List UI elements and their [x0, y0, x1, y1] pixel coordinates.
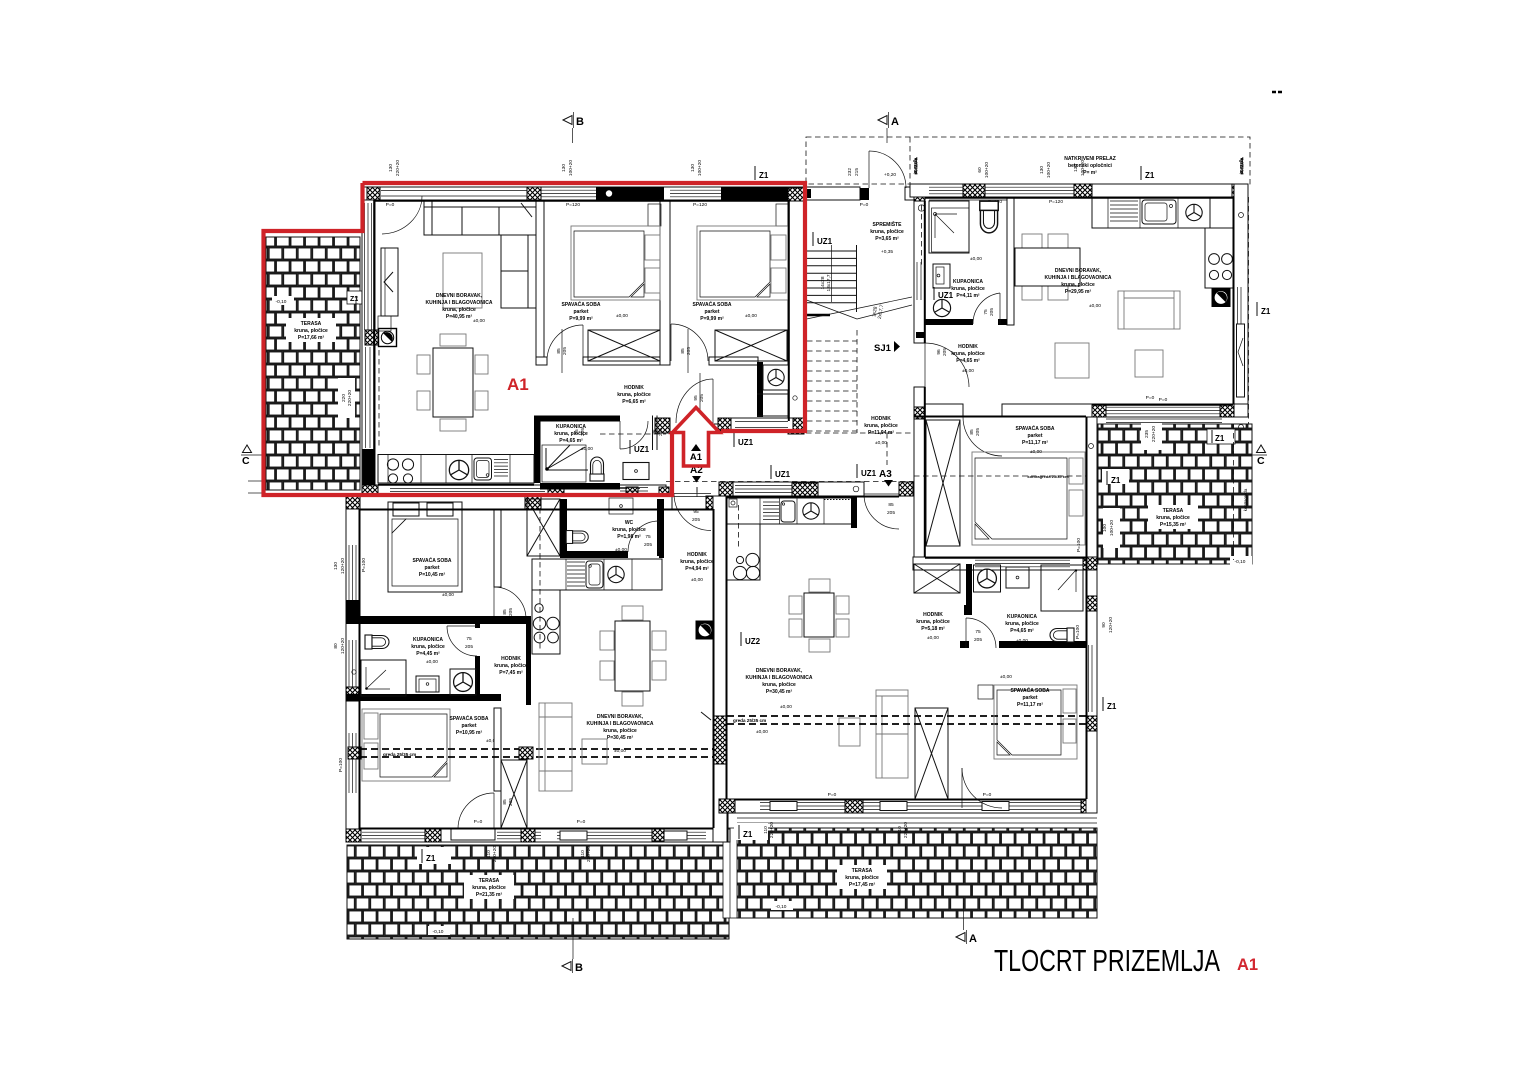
svg-text:100+20: 100+20 [568, 160, 574, 176]
svg-text:100: 100 [1102, 524, 1108, 532]
svg-text:kruna, pločice: kruna, pločice [442, 307, 476, 313]
svg-text:SPAVAĆA SOBA: SPAVAĆA SOBA [1011, 686, 1050, 694]
svg-text:Z1: Z1 [1145, 171, 1155, 180]
svg-text:P=11,94 m²: P=11,94 m² [868, 430, 894, 436]
svg-text:±0,00: ±0,00 [1016, 638, 1028, 644]
svg-text:P=4,65 m²: P=4,65 m² [559, 438, 583, 444]
svg-text:P=30,45 m²: P=30,45 m² [766, 689, 793, 695]
svg-text:KUHINJA I BLAGOVAONICA: KUHINJA I BLAGOVAONICA [1045, 275, 1112, 281]
svg-text:P=100: P=100 [1076, 538, 1082, 552]
svg-text:kruna, pločice: kruna, pločice [294, 328, 328, 334]
svg-text:UZ1: UZ1 [634, 445, 650, 454]
svg-text:60: 60 [977, 167, 983, 173]
svg-text:C: C [1257, 455, 1265, 467]
svg-text:kruna, pločice: kruna, pločice [845, 875, 879, 881]
svg-text:P=10,95 m²: P=10,95 m² [456, 730, 483, 736]
svg-text:205: 205 [887, 510, 895, 516]
svg-text:kontragreda 25/35 cm: kontragreda 25/35 cm [1027, 474, 1069, 479]
svg-text:kruna, pločice: kruna, pločice [612, 527, 646, 533]
svg-text:KUHINJA I BLAGOVAONICA: KUHINJA I BLAGOVAONICA [746, 675, 813, 681]
svg-text:110: 110 [897, 826, 903, 834]
svg-text:P=100: P=100 [1075, 625, 1081, 639]
svg-text:HODNIK: HODNIK [923, 612, 943, 618]
svg-text:A1: A1 [507, 375, 529, 394]
svg-text:85: 85 [502, 609, 508, 615]
svg-text:P=0: P=0 [1146, 395, 1155, 401]
svg-text:DNEVNI BORAVAK,: DNEVNI BORAVAK, [756, 668, 803, 674]
svg-text:205: 205 [580, 428, 586, 436]
svg-text:kruna, pločice: kruna, pločice [916, 619, 950, 625]
svg-text:205: 205 [562, 347, 568, 355]
svg-text:Z1: Z1 [743, 830, 753, 839]
svg-text:85: 85 [556, 348, 562, 354]
svg-text:85: 85 [680, 348, 686, 354]
svg-text:P=11,17 m²: P=11,17 m² [1017, 702, 1043, 708]
svg-text:P=17,45 m²: P=17,45 m² [849, 882, 876, 888]
svg-text:HODNIK: HODNIK [624, 385, 644, 391]
svg-text:232: 232 [847, 168, 853, 176]
svg-text:205: 205 [658, 428, 664, 436]
svg-text:kruna, pločice: kruna, pločice [494, 663, 528, 669]
svg-text:205: 205 [942, 348, 948, 356]
svg-text:A1: A1 [1237, 956, 1258, 974]
svg-text:P=5,18 m²: P=5,18 m² [921, 626, 945, 632]
svg-text:parket: parket [424, 565, 439, 571]
svg-text:P=4,45 m²: P=4,45 m² [416, 651, 440, 657]
svg-text:±0,00: ±0,00 [442, 592, 454, 598]
svg-text:A1: A1 [690, 452, 703, 463]
svg-text:UZ1: UZ1 [861, 469, 877, 478]
svg-text:-0,10: -0,10 [433, 929, 444, 935]
svg-text:220+20: 220+20 [347, 390, 353, 406]
svg-text:96: 96 [936, 349, 942, 355]
svg-text:kruna, pločice: kruna, pločice [411, 644, 445, 650]
svg-text:NATKRIVENI PRELAZ: NATKRIVENI PRELAZ [1064, 156, 1116, 162]
svg-text:205: 205 [692, 517, 700, 523]
svg-text:85: 85 [888, 502, 894, 508]
svg-text:DNEVNI BORAVAK,: DNEVNI BORAVAK, [1055, 268, 1102, 274]
svg-text:95: 95 [693, 395, 699, 401]
svg-text:P=9,99 m²: P=9,99 m² [569, 316, 593, 322]
svg-text:+0,35: +0,35 [881, 249, 893, 255]
svg-text:±0,00: ±0,00 [875, 440, 887, 446]
svg-text:P=1,98 m²: P=1,98 m² [617, 534, 641, 540]
svg-text:P=0: P=0 [860, 202, 869, 208]
svg-text:P=0: P=0 [828, 792, 837, 798]
svg-text:75: 75 [645, 534, 651, 540]
svg-text:HODNIK: HODNIK [501, 656, 521, 662]
svg-text:B: B [576, 116, 584, 128]
svg-text:130: 130 [561, 164, 567, 172]
svg-text:P=4,11 m²: P=4,11 m² [956, 293, 980, 299]
svg-text:±0,00: ±0,00 [581, 446, 593, 452]
svg-text:betonski opločnici: betonski opločnici [1068, 163, 1113, 169]
svg-text:P=29,95 m²: P=29,95 m² [1065, 289, 1092, 295]
svg-text:konzola: konzola [1239, 157, 1245, 174]
svg-text:±0,00: ±0,00 [780, 704, 792, 710]
svg-text:P=6,65 m²: P=6,65 m² [622, 399, 646, 405]
svg-text:KUHINJA I BLAGOVAONICA: KUHINJA I BLAGOVAONICA [587, 721, 654, 727]
svg-text:A: A [969, 933, 977, 945]
svg-text:A: A [891, 116, 899, 128]
svg-text:P=3,65 m²: P=3,65 m² [875, 236, 899, 242]
svg-text:110: 110 [580, 850, 586, 858]
svg-text:kruna, pločice: kruna, pločice [1061, 282, 1095, 288]
svg-text:parket: parket [573, 309, 588, 315]
svg-text:SPREMIŠTE: SPREMIŠTE [873, 220, 903, 228]
svg-text:P=0: P=0 [1159, 397, 1168, 403]
svg-text:±0,00: ±0,00 [927, 635, 939, 641]
svg-text:TERASA: TERASA [301, 321, 322, 327]
svg-text:P=40,95 m²: P=40,95 m² [446, 314, 473, 320]
svg-text:85: 85 [502, 799, 508, 805]
svg-text:DNEVNI BORAVAK,: DNEVNI BORAVAK, [597, 714, 644, 720]
svg-text:±0,00: ±0,00 [1089, 303, 1101, 309]
svg-text:215: 215 [854, 168, 860, 176]
svg-text:220+20: 220+20 [769, 822, 775, 838]
svg-text:KUHINJA I BLAGOVAONICA: KUHINJA I BLAGOVAONICA [426, 300, 493, 306]
svg-text:TLOCRT PRIZEMLJA: TLOCRT PRIZEMLJA [994, 943, 1220, 978]
svg-text:kruna, pločice: kruna, pločice [951, 351, 985, 357]
svg-text:HODNIK: HODNIK [958, 344, 978, 350]
svg-text:P=0: P=0 [386, 202, 395, 208]
svg-text:kruna, pločice: kruna, pločice [472, 885, 506, 891]
svg-text:P=15,35 m²: P=15,35 m² [1160, 522, 1187, 528]
svg-text:SPAVAĆA SOBA: SPAVAĆA SOBA [1016, 424, 1055, 432]
svg-text:P=120: P=120 [566, 202, 580, 208]
svg-text:130: 130 [388, 164, 394, 172]
svg-text:kruna, pločice: kruna, pločice [680, 559, 714, 565]
svg-text:KUPAONICA: KUPAONICA [1007, 614, 1037, 620]
svg-text:parket: parket [1027, 433, 1042, 439]
svg-text:P=100: P=100 [338, 758, 344, 772]
svg-text:KUPAONICA: KUPAONICA [953, 279, 983, 285]
svg-text:205: 205 [508, 798, 514, 806]
svg-text:TERASA: TERASA [479, 878, 500, 884]
svg-text:P=4,65 m²: P=4,65 m² [956, 358, 980, 364]
svg-text:P=120: P=120 [693, 202, 707, 208]
svg-text:SPAVAĆA SOBA: SPAVAĆA SOBA [562, 300, 601, 308]
svg-text:±0,00: ±0,00 [1030, 449, 1042, 455]
svg-text:SPAVAĆA SOBA: SPAVAĆA SOBA [693, 300, 732, 308]
svg-text:±0,00: ±0,00 [756, 729, 768, 735]
svg-text:205: 205 [975, 428, 981, 436]
svg-text:P=0: P=0 [354, 295, 360, 304]
svg-text:205: 205 [989, 308, 995, 316]
svg-text:kruna, pločice: kruna, pločice [762, 682, 796, 688]
svg-text:Z1: Z1 [1111, 476, 1121, 485]
svg-text:P=17,66 m²: P=17,66 m² [298, 335, 325, 341]
svg-text:P=10,45 m²: P=10,45 m² [419, 572, 446, 578]
svg-text:kruna, pločice: kruna, pločice [617, 392, 651, 398]
svg-text:P=4,65 m²: P=4,65 m² [1010, 628, 1034, 634]
svg-text:kruna, pločice: kruna, pločice [864, 423, 898, 429]
svg-text:220+20: 220+20 [1151, 426, 1157, 442]
svg-text:±0,00: ±0,00 [616, 313, 628, 319]
svg-text:75: 75 [574, 429, 580, 435]
svg-text:120+20: 120+20 [1108, 617, 1114, 633]
svg-text:greda 25/35 cm: greda 25/35 cm [383, 752, 416, 757]
svg-text:kruna, pločice: kruna, pločice [951, 286, 985, 292]
svg-text:110: 110 [486, 850, 492, 858]
svg-text:HODNIK: HODNIK [871, 416, 891, 422]
svg-text:130: 130 [690, 164, 696, 172]
svg-text:TERASA: TERASA [1163, 508, 1184, 514]
svg-text:WC: WC [625, 520, 634, 526]
svg-text:-0,10: -0,10 [776, 904, 787, 910]
svg-text:P= m²: P= m² [1083, 170, 1097, 176]
svg-text:B: B [575, 962, 583, 974]
svg-text:Z1: Z1 [1215, 434, 1225, 443]
svg-text:100+20: 100+20 [984, 162, 990, 178]
svg-text:75: 75 [975, 629, 981, 635]
svg-text:konzola: konzola [913, 157, 919, 174]
svg-text:±0,00: ±0,00 [691, 577, 703, 583]
svg-text:13x17,7: 13x17,7 [826, 274, 832, 291]
svg-text:UZ1: UZ1 [775, 470, 791, 479]
svg-text:205: 205 [508, 608, 514, 616]
svg-text:100+20: 100+20 [1046, 162, 1052, 178]
svg-text:kruna, pločice: kruna, pločice [870, 229, 904, 235]
svg-text:Z1: Z1 [1261, 307, 1271, 316]
svg-text:parket: parket [1022, 695, 1037, 701]
svg-text:+0,20: +0,20 [884, 172, 896, 178]
svg-text:P=9,99 m²: P=9,99 m² [700, 316, 724, 322]
svg-text:75: 75 [983, 309, 989, 315]
svg-text:±0,00: ±0,00 [970, 256, 982, 262]
svg-text:C: C [242, 455, 250, 467]
svg-text:UZ1: UZ1 [817, 237, 833, 246]
svg-text:220+20: 220+20 [903, 822, 909, 838]
svg-text:greda 25/35 cm: greda 25/35 cm [733, 718, 766, 723]
svg-text:220+20: 220+20 [395, 160, 401, 176]
svg-text:P=11,17 m²: P=11,17 m² [1022, 440, 1048, 446]
svg-text:±0,00: ±0,00 [745, 313, 757, 319]
svg-text:KUPAONICA: KUPAONICA [413, 637, 443, 643]
svg-text:P=30,45 m²: P=30,45 m² [607, 735, 634, 741]
svg-text:±0,00: ±0,00 [962, 368, 974, 374]
svg-text:TERASA: TERASA [852, 868, 873, 874]
svg-text:UZ1: UZ1 [938, 291, 954, 300]
svg-text:kruna, pločice: kruna, pločice [1005, 621, 1039, 627]
svg-text:100+20: 100+20 [1109, 520, 1115, 536]
svg-text:P=0: P=0 [577, 819, 586, 825]
svg-text:SPAVAĆA SOBA: SPAVAĆA SOBA [413, 556, 452, 564]
svg-text:-0,10: -0,10 [276, 299, 287, 305]
svg-text:120+20: 120+20 [340, 558, 346, 574]
svg-text:Z1: Z1 [1107, 702, 1117, 711]
svg-text:±0,00: ±0,00 [473, 318, 485, 324]
svg-text:P=4,94 m²: P=4,94 m² [685, 566, 709, 572]
svg-text:130: 130 [333, 562, 339, 570]
svg-text:220+20: 220+20 [586, 846, 592, 862]
svg-text:75: 75 [466, 636, 472, 642]
svg-text:UZ2: UZ2 [745, 637, 761, 646]
svg-text:parket: parket [704, 309, 719, 315]
svg-text:DNEVNI BORAVAK,: DNEVNI BORAVAK, [436, 293, 483, 299]
svg-text:P=100: P=100 [361, 558, 367, 572]
svg-text:130: 130 [1039, 166, 1045, 174]
svg-text:±0,00: ±0,00 [1000, 674, 1012, 680]
svg-text:P=21,35 m²: P=21,35 m² [476, 892, 503, 898]
svg-text:110: 110 [763, 826, 769, 834]
svg-text:100+20: 100+20 [697, 160, 703, 176]
svg-text:P=0: P=0 [474, 819, 483, 825]
svg-text:A3: A3 [879, 469, 892, 480]
svg-text:kruna, pločice: kruna, pločice [1156, 515, 1190, 521]
svg-text:120+20: 120+20 [340, 638, 346, 654]
svg-text:P=120: P=120 [1049, 199, 1063, 205]
svg-text:205: 205 [974, 637, 982, 643]
svg-text:SPAVAĆA SOBA: SPAVAĆA SOBA [450, 714, 489, 722]
svg-text:205: 205 [465, 644, 473, 650]
svg-text:Z1: Z1 [426, 854, 436, 863]
svg-text:235: 235 [1144, 430, 1150, 438]
svg-text:SJ1: SJ1 [874, 343, 892, 354]
svg-text:80: 80 [333, 643, 339, 649]
svg-text:UZ1: UZ1 [738, 438, 754, 447]
svg-text:P=0: P=0 [983, 792, 992, 798]
svg-text:Z1: Z1 [759, 171, 769, 180]
svg-text:85: 85 [969, 429, 975, 435]
svg-text:kruna, pločice: kruna, pločice [603, 728, 637, 734]
svg-text:±0,00: ±0,00 [615, 547, 627, 553]
svg-text:220+20: 220+20 [492, 846, 498, 862]
svg-text:HODNIK: HODNIK [687, 552, 707, 558]
svg-text:-0,10: -0,10 [1235, 559, 1246, 565]
svg-text:parket: parket [461, 723, 476, 729]
svg-text:P=7,45 m²: P=7,45 m² [499, 670, 523, 676]
svg-text:205: 205 [686, 347, 692, 355]
svg-text:220: 220 [341, 394, 347, 402]
svg-text:90: 90 [1101, 622, 1107, 628]
svg-text:kontragreda: kontragreda [1243, 488, 1248, 511]
svg-text:205: 205 [644, 542, 652, 548]
svg-text:14x28: 14x28 [820, 276, 826, 289]
svg-text:±0,00: ±0,00 [426, 659, 438, 665]
